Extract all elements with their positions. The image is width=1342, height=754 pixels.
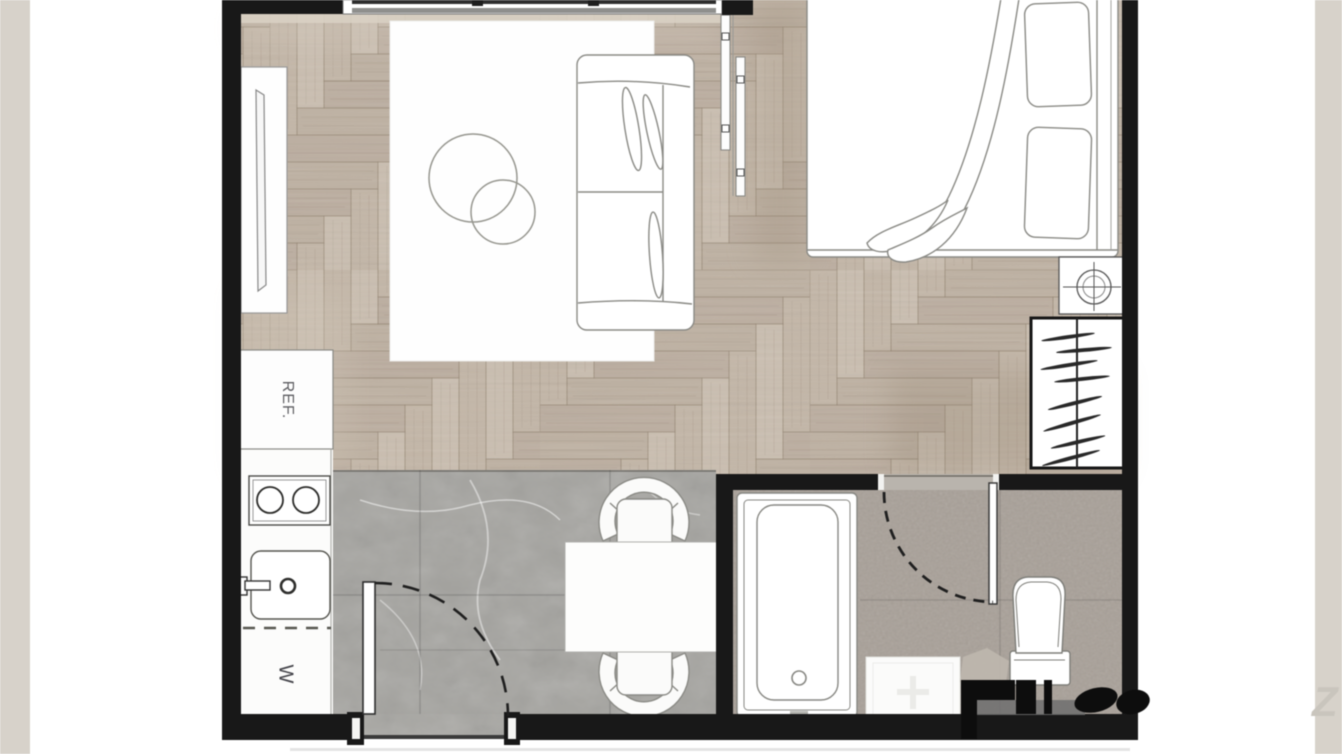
svg-text:REF.: REF. xyxy=(279,381,296,420)
svg-text:Z: Z xyxy=(1311,678,1339,725)
svg-text:W: W xyxy=(275,665,297,684)
